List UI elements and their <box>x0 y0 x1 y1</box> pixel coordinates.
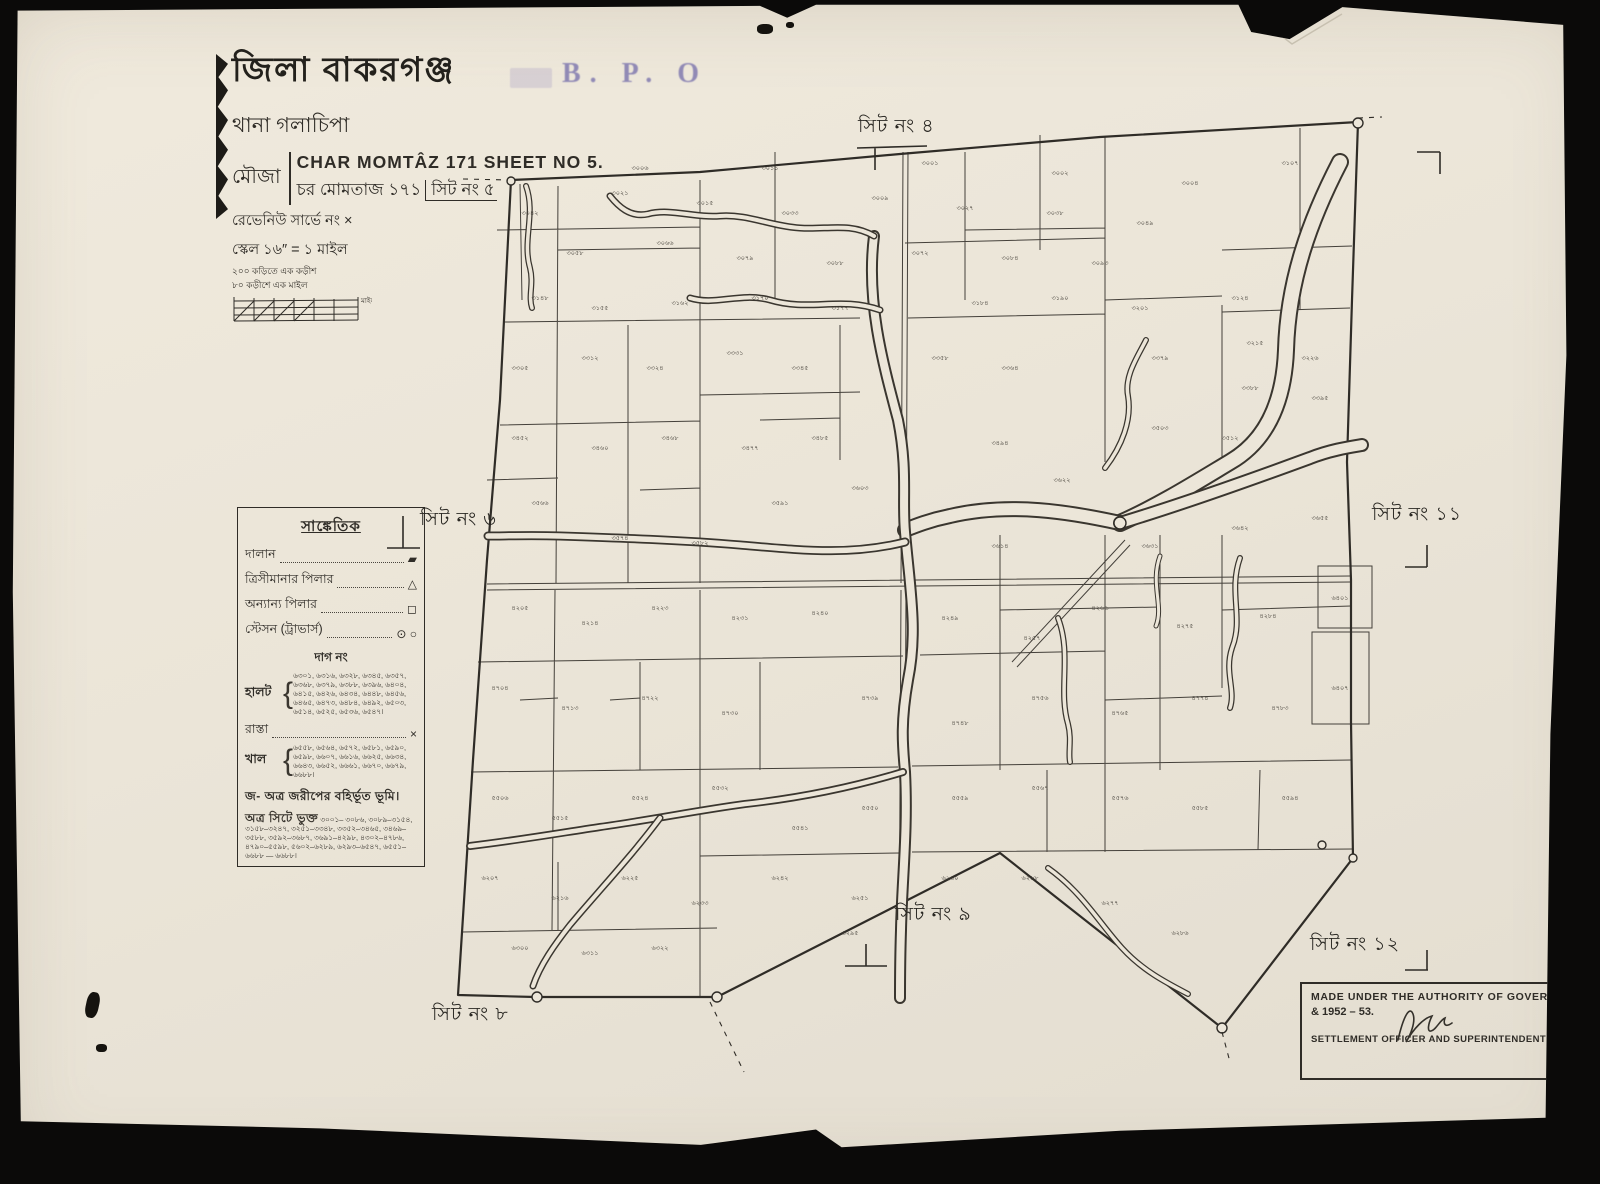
exclusion-note: জ- অত্র জরীপের বহির্ভূত ভূমি। <box>245 788 417 808</box>
paper-sheet: ৩০৪২৩০৫৮৩০২১৩০৬৬৩০১৫৩০৭৯৩০৩৩৩০৮৮৩০০৯৩০৭২… <box>0 0 1600 1184</box>
plot-number: ৪২৬৬ <box>1092 605 1110 612</box>
plot-number: ৩৬১৪ <box>992 543 1009 550</box>
legend-item-road: রাস্তা × <box>245 721 417 741</box>
plot-number: ৩১০৭ <box>1282 160 1299 167</box>
legend-item-halot: হালট { ৬৩০১, ৬৩১৬, ৬৩২৮, ৬৩৪৫, ৬৩৫৭, ৬৩৬… <box>245 671 417 716</box>
thana-title: থানা গলাচিপা <box>232 109 542 144</box>
sheet-ref-left: সিট নং ৬ <box>420 505 497 537</box>
plot-number: ৩০৪৯ <box>1137 220 1155 227</box>
plot-number: ৩৫৮২ <box>692 540 709 547</box>
plot-number: ৪২৭৫ <box>1177 623 1194 630</box>
halot-numbers: ৬৩০১, ৬৩১৬, ৬৩২৮, ৬৩৪৫, ৬৩৫৭, ৬৩৬৮, ৬৩৭৯… <box>293 671 417 716</box>
legend-item-other-pillar: অন্যান্য পিলার ◻ <box>245 596 417 616</box>
plot-number: ৪৭২২ <box>642 695 659 702</box>
plot-number: ৪৭৫৬ <box>1032 695 1050 702</box>
plot-number: ৩৫০৩ <box>1152 425 1170 432</box>
plot-number: ৫৫৬৭ <box>1032 785 1049 792</box>
plot-number: ৩৩৬৪ <box>1002 365 1019 372</box>
plot-number: ৩৩৮৮ <box>1242 385 1260 392</box>
plot-number: ৬৪০১ <box>1332 595 1349 602</box>
bpo-stamp: B. P. O <box>562 58 708 90</box>
plot-number-labels: ৩০৪২৩০৫৮৩০২১৩০৬৬৩০১৫৩০৭৯৩০৩৩৩০৮৮৩০০৯৩০৭২… <box>482 160 1349 957</box>
plot-number: ৩৬২২ <box>1054 477 1071 484</box>
plot-number: ৪২৪০ <box>812 610 829 617</box>
included-label: অত্র সিটে ভুক্ত <box>245 811 318 825</box>
plot-number: ৬২৫১ <box>852 895 869 902</box>
plot-number: ৫৫৮৫ <box>1192 805 1209 812</box>
station-icon: ⊙ ○ <box>396 627 417 641</box>
plot-number: ৩৬৫৫ <box>1312 515 1329 522</box>
boundary-pillar-icon: △ <box>408 577 417 591</box>
plot-number: ৩০১৫ <box>697 200 714 207</box>
other-pillar-icon: ◻ <box>407 602 417 616</box>
plot-number: ৩১৭৭ <box>832 305 849 312</box>
plot-number: ৩৫১২ <box>1222 435 1239 442</box>
plot-number: ৬২৪২ <box>772 875 789 882</box>
revenue-survey-line: রেভেনিউ সার্ভে নং × <box>232 210 542 234</box>
sheet-ref-bottom-middle: সিট নং ৯ <box>895 900 972 932</box>
plot-number: ৩০৯৩ <box>1092 260 1110 267</box>
plot-number: ৫৫৫০ <box>862 805 879 812</box>
plot-number: ৫৫১৫ <box>552 815 569 822</box>
plot-number: ৫৫৯৪ <box>1282 795 1299 802</box>
scanned-map-page: ৩০৪২৩০৫৮৩০২১৩০৬৬৩০১৫৩০৭৯৩০৩৩৩০৮৮৩০০৯৩০৭২… <box>0 0 1600 1184</box>
plot-number: ৬২০৭ <box>482 875 499 882</box>
bracket-mark <box>289 152 291 205</box>
plot-number: ৪৭৩০ <box>722 710 739 717</box>
plot-number: ৬৩০০ <box>512 945 529 952</box>
legend-box: সাঙ্কেতিক দালান ▰ ত্রিসীমানার পিলার △ অন… <box>237 507 425 867</box>
included-plots-note: অত্র সিটে ভুক্ত ৩০০১– ৩০৮৬, ৩০৮৯–৩১৫৪, ৩… <box>245 814 417 860</box>
plot-number: ৪৭৪৮ <box>952 720 970 727</box>
sheet-ref-bottom-left: সিট নং ৮ <box>432 1000 509 1032</box>
plot-number: ৩০০৯ <box>872 195 890 202</box>
scale-note-2: ৮০ কড়ীশে এক মাইল <box>232 280 542 291</box>
sheet-ref-right: সিট নং ১১ <box>1372 500 1462 532</box>
plot-number: ৩৫৬৬ <box>532 500 550 507</box>
plot-number: ৩০৬৬ <box>657 240 675 247</box>
plot-number: ৩২০১ <box>1132 305 1149 312</box>
mouza-name-english: CHAR MOMTÂZ 171 SHEET NO 5. <box>297 152 604 173</box>
plot-number: ৪২৫৭ <box>1024 635 1041 642</box>
plot-number: ৬২৩৩ <box>692 900 710 907</box>
plot-number: ৩০০১ <box>922 160 939 167</box>
plot-number: ৪৭১৩ <box>562 705 580 712</box>
plot-number: ৩৩৭৯ <box>1152 355 1170 362</box>
sheet-number-bengali: সিট নং ৫ <box>425 180 496 201</box>
plot-number: ৩৩৯৫ <box>1312 395 1329 402</box>
plot-number: ৩১৬২ <box>672 300 689 307</box>
plot-number: ৫৫৪১ <box>792 825 809 832</box>
plot-number: ৩৬৩১ <box>1142 543 1159 550</box>
plot-number: ৩৩০৫ <box>512 365 529 372</box>
plot-number: ৪২২৩ <box>652 605 670 612</box>
legend-item-station: স্টেসন (ট্রাভার্স) ⊙ ○ <box>245 621 417 641</box>
mouza-name-bengali: চর মোমতাজ ১৭১ <box>297 180 422 199</box>
plot-number: ৩৫৯১ <box>772 500 789 507</box>
plot-number: ৩১৫৫ <box>592 305 609 312</box>
plot-number: ৩২২৬ <box>1302 355 1320 362</box>
plot-number-heading: দাগ নং <box>245 649 417 669</box>
scan-artifact <box>757 24 773 34</box>
plot-number: ৪২৩১ <box>732 615 749 622</box>
plot-number: ৬২৭৭ <box>1102 900 1119 907</box>
plot-number: ৩০৩৮ <box>1047 210 1065 217</box>
svg-text:মাইল: মাইল <box>360 297 372 305</box>
plot-number: ৩১৯০ <box>1052 295 1069 302</box>
title-block: জিলা বাকরগঞ্জ থানা গলাচিপা মৌজা CHAR MOM… <box>232 44 542 332</box>
plot-number: ৪২১৪ <box>582 620 599 627</box>
plot-number: ৪৭০৪ <box>492 685 509 692</box>
plot-number: ৩৪৭৭ <box>742 445 759 452</box>
road-symbol: × <box>410 727 417 741</box>
plot-number: ৩০৭৯ <box>737 255 755 262</box>
plot-number: ৫৫০৬ <box>492 795 510 802</box>
plot-number: ৩০৮৪ <box>1002 255 1019 262</box>
plot-number: ৪৭৭৪ <box>1192 695 1209 702</box>
plot-number: ৩০০৬ <box>632 165 650 172</box>
plot-number: ৩০০৪ <box>1182 180 1199 187</box>
plot-number: ৩১৭০ <box>752 295 769 302</box>
scan-artifact <box>96 1044 107 1052</box>
plot-number: ৩০৭২ <box>912 250 929 257</box>
plot-number: ৫৫৫৯ <box>952 795 970 802</box>
plot-number: ৬২৯৫ <box>842 930 859 937</box>
plot-number: ৬২৬৮ <box>1022 875 1040 882</box>
plot-number: ৩০১১ <box>762 165 779 172</box>
plot-number: ৩০৫৮ <box>567 250 585 257</box>
building-icon: ▰ <box>408 552 417 566</box>
authority-box: MADE UNDER THE AUTHORITY OF GOVERNMENT &… <box>1300 982 1576 1080</box>
legend-item-tri-boundary-pillar: ত্রিসীমানার পিলার △ <box>245 571 417 591</box>
stamp-smudge <box>510 68 552 88</box>
plot-number: ৩৪৮৫ <box>812 435 829 442</box>
plot-number: ৬২৮৬ <box>1172 930 1190 937</box>
plot-number: ৩৩৩১ <box>727 350 744 357</box>
plot-number: ৩৩১২ <box>582 355 599 362</box>
plot-number: ৩৪৫২ <box>512 435 529 442</box>
scale-line: স্কেল ১৬″ = ১ মাইল <box>232 239 542 263</box>
plot-number: ৬২৬০ <box>942 875 959 882</box>
plot-number: ৫৫৭৬ <box>1112 795 1130 802</box>
plot-number: ৩০২১ <box>612 190 629 197</box>
plot-number: ৩০০২ <box>1052 170 1069 177</box>
plot-number: ৪২৪৯ <box>942 615 960 622</box>
mouza-label: মৌজা <box>232 162 281 195</box>
plot-number: ৬৪০৭ <box>1332 685 1349 692</box>
plot-number: ৬২২৫ <box>622 875 639 882</box>
plot-number: ৪৭৮৩ <box>1272 705 1290 712</box>
plot-number: ৪৭৩৯ <box>862 695 880 702</box>
plot-number: ৩১৮৪ <box>972 300 989 307</box>
plot-number: ৬৩১১ <box>582 950 599 957</box>
plot-number: ৩০৩৩ <box>782 210 800 217</box>
legend-item-khal: খাল { ৬৫৫৮, ৬৫৬৪, ৬৫৭২, ৬৫৮১, ৬৫৯০, ৬৫৯৮… <box>245 743 417 779</box>
scale-bar: মাইল <box>232 295 372 327</box>
sheet-ref-bottom-right: সিট নং ১২ <box>1310 930 1400 962</box>
plot-number: ৩০২৭ <box>957 205 974 212</box>
plot-number: ৪২৮৪ <box>1260 613 1277 620</box>
plot-number: ৬২১৬ <box>552 895 570 902</box>
plot-number: ৩৪৯৪ <box>992 440 1009 447</box>
plot-number: ৩৩২৪ <box>647 365 664 372</box>
plot-number: ৩০৮৮ <box>827 260 845 267</box>
plot-number: ৪৭৬৫ <box>1112 710 1129 717</box>
plot-number: ৩৫৭৪ <box>612 535 629 542</box>
legend-item-building: দালান ▰ <box>245 546 417 566</box>
plot-number: ৬৩২২ <box>652 945 669 952</box>
plot-number: ৩৪৬০ <box>592 445 609 452</box>
plot-number: ৩৪৬৮ <box>662 435 680 442</box>
district-title: জিলা বাকরগঞ্জ <box>232 44 542 101</box>
plot-number: ৩২১৫ <box>1247 340 1264 347</box>
plot-number: ৩৬০৩ <box>852 485 870 492</box>
sheet-ref-top: সিট নং ৪ <box>858 112 935 144</box>
plot-number: ৩৩৫৮ <box>932 355 950 362</box>
legend-title: সাঙ্কেতিক <box>245 515 417 540</box>
signature-icon <box>1394 1002 1466 1048</box>
detached-plot <box>1312 632 1369 724</box>
plot-number: ৩১২৪ <box>1232 295 1249 302</box>
khal-numbers: ৬৫৫৮, ৬৫৬৪, ৬৫৭২, ৬৫৮১, ৬৫৯০, ৬৫৯৮, ৬৬০৭… <box>293 743 417 779</box>
plot-number: ৫৫৩২ <box>712 785 729 792</box>
scale-note-1: ২০০ কড়িতে এক কড়ীশ <box>232 266 542 277</box>
plot-number: ৪২০৫ <box>512 605 529 612</box>
paper-fold-crease <box>1245 8 1342 44</box>
scan-artifact <box>786 22 794 28</box>
plot-number: ৩৩৪৫ <box>792 365 809 372</box>
plot-number: ৫৫২৪ <box>632 795 649 802</box>
plot-number: ৩৬৪২ <box>1232 525 1249 532</box>
